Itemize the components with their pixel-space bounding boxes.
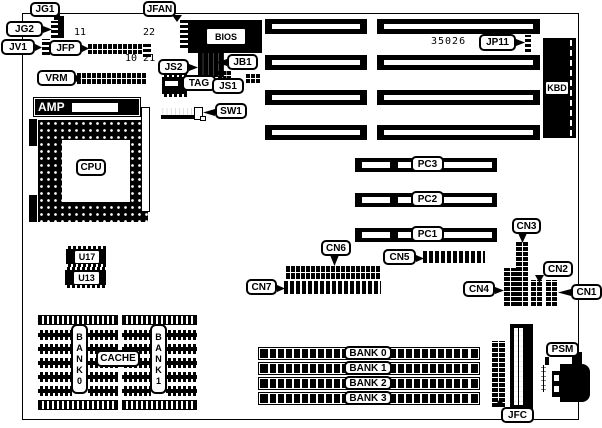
slot-stripe [442, 162, 492, 168]
simm-clip [471, 394, 478, 403]
power-socket [560, 364, 590, 402]
callout-sw1: SW1 [215, 103, 247, 119]
callout-tag: TAG [182, 75, 216, 91]
cache-chip [38, 386, 72, 396]
slot-stripe [362, 162, 390, 168]
simm-clip [260, 349, 268, 358]
js1-pins [246, 74, 260, 83]
callout-js1: JS1 [212, 78, 244, 94]
jfc-header [492, 341, 505, 407]
amp-label: AMP [38, 101, 65, 113]
cache-chip [122, 330, 151, 340]
isa-slot [265, 90, 367, 105]
callout-simm-bank0: BANK 0 [344, 346, 392, 360]
callout-js2: JS2 [158, 59, 189, 75]
callout-vrm: VRM [37, 70, 76, 86]
cn5-connector [423, 251, 485, 263]
callout-bank0-column: BANK0 [71, 324, 88, 394]
simm-clip [471, 349, 478, 358]
tag-ram-window [165, 81, 178, 86]
callout-u13: U13 [73, 271, 100, 285]
callout-bank1-column: BANK1 [150, 324, 167, 394]
isa-slot [265, 125, 367, 140]
callout-cn7: CN7 [246, 279, 277, 295]
cache-chip [166, 344, 197, 354]
isa-slot [265, 55, 367, 70]
callout-pc1: PC1 [411, 226, 444, 242]
amp-window [72, 103, 118, 112]
cn3-header [516, 242, 528, 306]
callout-simm-bank3: BANK 3 [344, 391, 392, 405]
jp11-jumper [525, 35, 531, 52]
jfp-pin10-21-number: 10 21 [125, 53, 155, 64]
slot-stripe [384, 24, 533, 29]
jfp-pin22-number: 22 [143, 27, 155, 38]
isa-slot [377, 90, 540, 105]
cache-chip [122, 372, 151, 382]
callout-cn4: CN4 [463, 281, 495, 297]
cn6-connector [286, 266, 380, 279]
slot-stripe [362, 197, 390, 203]
slot-stripe [272, 60, 360, 65]
callout-u17: U17 [74, 250, 100, 264]
keyboard-connector-dashes [570, 40, 572, 136]
slot-stripe [384, 95, 533, 100]
cache-chip [88, 372, 118, 382]
slot-stripe [272, 95, 360, 100]
callout-simm-bank2: BANK 2 [344, 376, 392, 390]
psm-pointer [545, 357, 549, 365]
cache-chip [88, 330, 118, 340]
callout-kbd: KBD [545, 81, 569, 95]
callout-jg2: JG2 [6, 21, 43, 37]
callout-pc3: PC3 [411, 156, 444, 172]
callout-jp11: JP11 [479, 34, 516, 51]
simm-clip [471, 379, 478, 388]
callout-cache: CACHE [96, 350, 140, 367]
isa-slot [377, 125, 540, 140]
slot-stripe [384, 60, 533, 65]
simm-clip [260, 394, 268, 403]
cn2-header [531, 280, 542, 306]
socket-lever [141, 107, 150, 212]
cache-chip [38, 344, 72, 354]
slot-stripe [272, 24, 360, 29]
callout-cn5: CN5 [383, 249, 416, 265]
callout-jb1: JB1 [227, 54, 258, 70]
callout-simm-bank1: BANK 1 [344, 361, 392, 375]
cn4-header [504, 268, 516, 306]
slot-stripe [442, 232, 492, 238]
cache-chip [88, 386, 118, 396]
sw1-tab [200, 116, 206, 121]
vrm-header [77, 73, 147, 84]
callout-bios: BIOS [206, 28, 246, 45]
socket-tab-bottom [29, 195, 37, 222]
power-connector-pins [512, 326, 525, 407]
simm-clip [260, 364, 268, 373]
cache-chip [38, 358, 72, 368]
callout-cn6: CN6 [321, 240, 351, 256]
callout-jv1: JV1 [1, 39, 35, 55]
cache-chip-row [122, 400, 197, 410]
slot-stripe [442, 197, 492, 203]
cache-chip [166, 372, 197, 382]
isa-slot [377, 19, 540, 34]
callout-jg1: JG1 [30, 2, 60, 17]
callout-jfan: JFAN [143, 1, 176, 17]
callout-cn2: CN2 [543, 261, 573, 277]
sw1-dip-switch [159, 105, 196, 122]
callout-jfc: JFC [501, 407, 534, 423]
jg2-jumper [51, 21, 58, 38]
callout-cn3: CN3 [512, 218, 541, 234]
cache-chip [38, 372, 72, 382]
callout-cn1: CN1 [571, 284, 602, 300]
callout-pc2: PC2 [411, 191, 444, 207]
cn1-header [546, 280, 557, 306]
power-socket-pin [554, 375, 559, 381]
callout-cpu: CPU [76, 159, 106, 176]
cn7-connector [284, 281, 381, 294]
cache-chip [166, 386, 197, 396]
cache-chip [38, 330, 72, 340]
psm-pin-column [539, 363, 548, 394]
slot-stripe [362, 232, 390, 238]
socket-tab-top [29, 119, 37, 146]
simm-clip [260, 379, 268, 388]
jfp-pin11-number: 11 [74, 27, 86, 38]
motherboard-diagram: JG1 JG2 JV1 JFP 11 22 10 21 VRM AMP CPU … [0, 0, 602, 428]
cache-chip-row [38, 400, 118, 410]
callout-jfp: JFP [49, 40, 82, 56]
cache-chip [122, 386, 151, 396]
isa-slot [265, 19, 367, 34]
slot-stripe [272, 130, 360, 135]
isa-slot [377, 55, 540, 70]
power-socket-pin [554, 386, 559, 392]
simm-clip [471, 364, 478, 373]
callout-psm: PSM [546, 342, 579, 357]
slot-stripe [384, 130, 533, 135]
cache-chip [166, 358, 197, 368]
chip-number: 35026 [431, 36, 466, 47]
cache-chip [166, 330, 197, 340]
